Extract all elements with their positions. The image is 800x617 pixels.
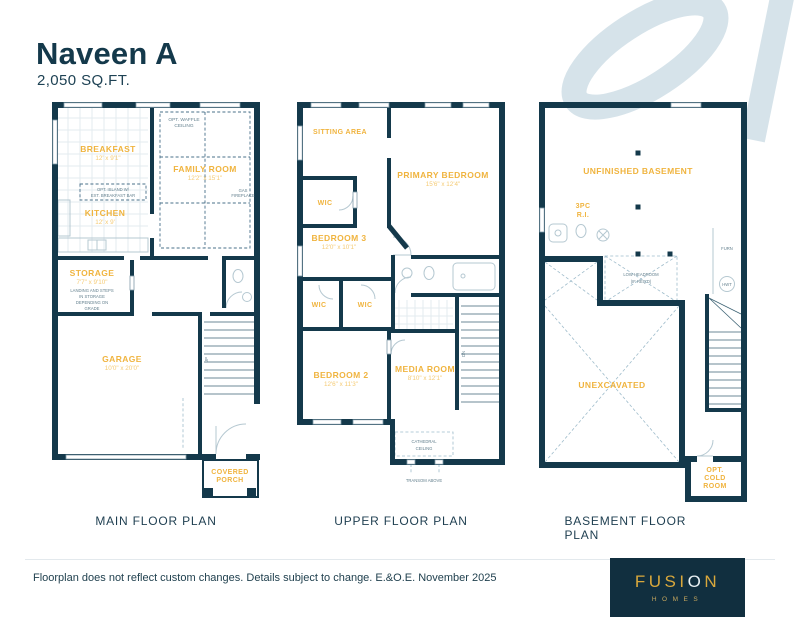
bathroom-fixtures (395, 263, 495, 293)
room-label-bedroom2: BEDROOM 2 (313, 370, 368, 380)
room-label-media: MEDIA ROOM (395, 364, 455, 374)
room-label-3pc-1: 3PC (576, 203, 591, 210)
room-label-3pc-2: R.I. (577, 212, 590, 219)
note-furnace: FURN (721, 246, 733, 251)
note-storage-2: IN STORAGE (79, 294, 105, 299)
note-waffle-1: OPT. WAFFLE (168, 117, 199, 123)
walls (297, 102, 505, 465)
room-label-family: FAMILY ROOM (173, 164, 236, 174)
room-label-unfinished: UNFINISHED BASEMENT (583, 166, 693, 176)
room-label-garage: GARAGE (102, 354, 142, 364)
logo-letter-o: O (688, 572, 705, 591)
caption-main-floor: MAIN FLOOR PLAN (95, 514, 216, 528)
bath-tile-grid (395, 300, 453, 332)
room-dim-primary: 15'6" x 12'4" (426, 181, 461, 188)
floorplan-page: Naveen A 2,050 SQ.FT. (0, 0, 800, 617)
room-dim-media: 8'10" x 12'1" (408, 375, 443, 382)
note-storage-4: GRADE (85, 306, 100, 311)
room-label-coldroom-3: ROOM (703, 483, 726, 490)
note-cathedral-2: CEILING (416, 446, 433, 451)
plan-title: Naveen A (36, 36, 178, 72)
walls (539, 102, 747, 502)
logo-wordmark: FUSION (635, 572, 720, 592)
logo-part1: FUSI (635, 572, 688, 591)
note-waffle-2: CEILING (174, 123, 193, 129)
room-dim-storage: 7'7" x 9'10" (76, 279, 107, 286)
note-lowheadroom-2: (IF REQ'D) (631, 279, 652, 284)
room-label-wic3: WIC (358, 302, 373, 309)
room-label-breakfast: BREAKFAST (80, 144, 136, 154)
room-dim-family: 12'2" x 15'1" (188, 175, 223, 182)
note-storage-1: LANDING AND STEPS (70, 288, 113, 293)
stair-label-dn: DN (461, 351, 466, 357)
main-floor-plan: BREAKFAST 12' x 9'1" FAMILY ROOM 12'2" x… (50, 100, 262, 505)
powder-room-fixtures (226, 270, 252, 309)
room-label-porch-1: COVERED (211, 469, 248, 476)
basement-floor-plan: UNFINISHED BASEMENT 3PC R.I. LOW HEADROO… (537, 100, 749, 505)
room-label-storage: STORAGE (70, 268, 115, 278)
room-label-unexcavated: UNEXCAVATED (578, 380, 645, 390)
room-label-porch-2: PORCH (216, 477, 243, 484)
caption-basement-floor: BASEMENT FLOOR PLAN (565, 514, 722, 542)
stairs-up (204, 322, 254, 394)
room-label-coldroom-1: OPT. (706, 467, 723, 474)
room-label-primary: PRIMARY BEDROOM (397, 170, 488, 180)
note-hwt: HWT (722, 282, 732, 287)
note-storage-3: DEPENDING ON (76, 300, 108, 305)
logo-part2: N (704, 572, 720, 591)
room-label-coldroom-2: COLD (704, 475, 725, 482)
room-dim-kitchen: 12' x 9' (95, 219, 115, 226)
stair-label-up: UP (204, 357, 209, 363)
note-cathedral-1: CATHEDRAL (411, 439, 437, 444)
unexcavated-cross (545, 262, 679, 462)
logo-subtext: HOMES (652, 596, 703, 603)
note-island-1: OPT. ISLAND W/ (97, 187, 130, 192)
disclaimer-text: Floorplan does not reflect custom change… (33, 572, 496, 584)
room-label-wic2: WIC (312, 302, 327, 309)
room-label-bedroom3: BEDROOM 3 (311, 233, 366, 243)
room-label-kitchen: KITCHEN (85, 208, 126, 218)
basement-stairs (709, 298, 741, 404)
room-dim-bedroom3: 12'0" x 10'1" (322, 244, 357, 251)
note-fireplace-2: FIREPLACE (231, 193, 254, 198)
fusion-homes-logo: FUSION HOMES (610, 558, 745, 617)
upper-floor-plan: SITTING AREA WIC PRIMARY BEDROOM 15'6" x… (295, 100, 507, 500)
room-dim-breakfast: 12' x 9'1" (95, 155, 120, 162)
room-label-sitting: SITTING AREA (313, 129, 367, 136)
roughin-fixtures (549, 224, 609, 242)
room-dim-garage: 10'0" x 20'0" (105, 365, 140, 372)
note-island-2: EXT. BREAKFAST BAR (91, 193, 135, 198)
plan-sqft: 2,050 SQ.FT. (37, 72, 130, 89)
stairs-down (461, 306, 499, 402)
caption-upper-floor: UPPER FLOOR PLAN (334, 514, 468, 528)
room-dim-bedroom2: 12'6" x 11'3" (324, 381, 358, 388)
note-lowheadroom-1: LOW HEADROOM (623, 272, 659, 277)
note-transom: TRANSOM ABOVE (406, 478, 443, 483)
room-label-wic1: WIC (318, 200, 333, 207)
tile-grid (58, 108, 148, 252)
